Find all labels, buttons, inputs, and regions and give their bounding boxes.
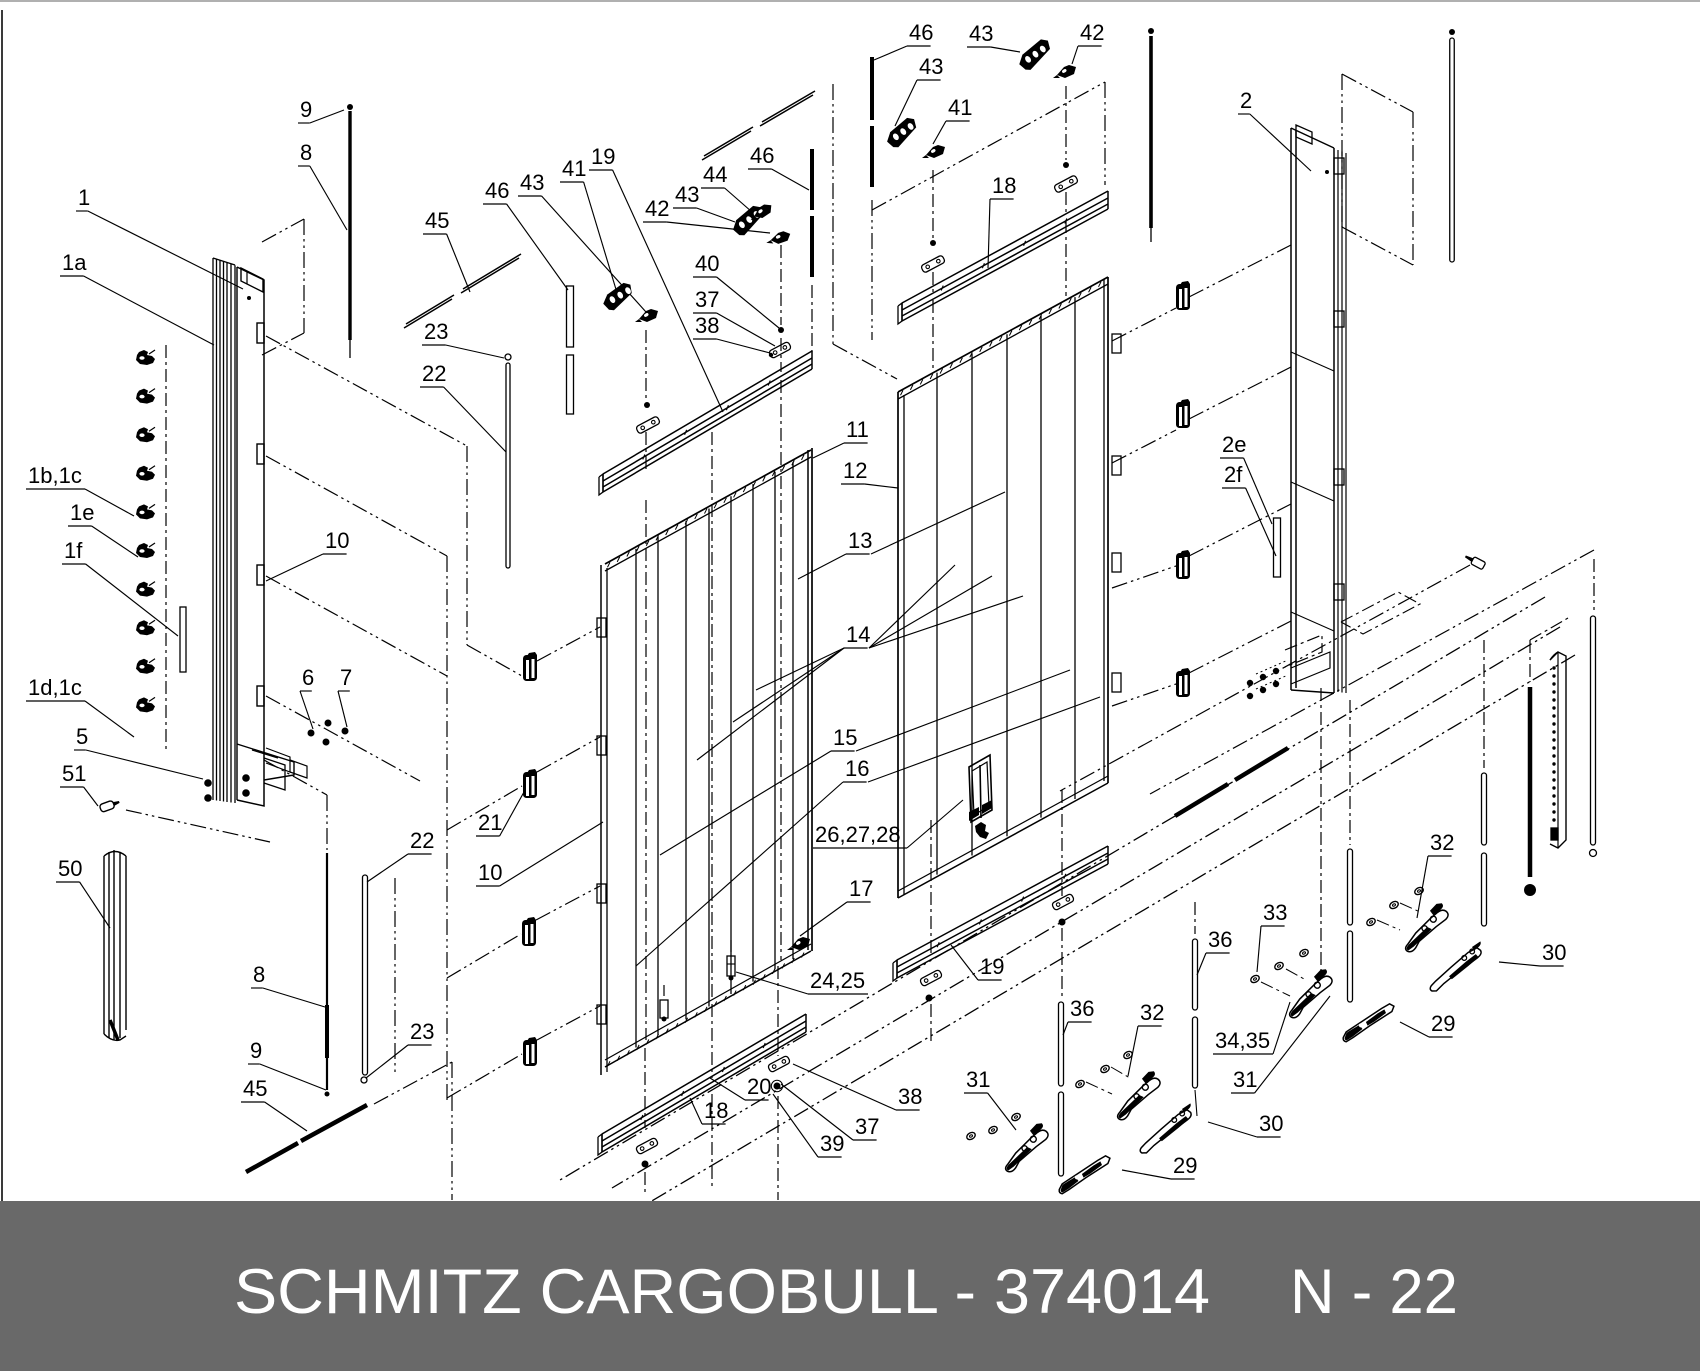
svg-text:19: 19 — [591, 144, 615, 169]
svg-text:32: 32 — [1430, 830, 1454, 855]
svg-text:32: 32 — [1140, 1000, 1164, 1025]
svg-text:46: 46 — [485, 178, 509, 203]
svg-text:2f: 2f — [1224, 462, 1243, 487]
svg-text:20: 20 — [747, 1074, 771, 1099]
svg-text:15: 15 — [833, 725, 857, 750]
svg-text:31: 31 — [1233, 1067, 1257, 1092]
svg-text:39: 39 — [820, 1131, 844, 1156]
svg-text:14: 14 — [846, 622, 870, 647]
svg-text:8: 8 — [300, 140, 312, 165]
svg-text:36: 36 — [1070, 996, 1094, 1021]
svg-text:18: 18 — [704, 1098, 728, 1123]
svg-text:31: 31 — [966, 1067, 990, 1092]
svg-text:24,25: 24,25 — [810, 968, 865, 993]
svg-text:1b,1c: 1b,1c — [28, 463, 82, 488]
svg-text:2e: 2e — [1222, 432, 1246, 457]
svg-text:9: 9 — [250, 1038, 262, 1063]
svg-text:1f: 1f — [64, 538, 83, 563]
svg-text:1e: 1e — [70, 500, 94, 525]
svg-text:30: 30 — [1259, 1111, 1283, 1136]
svg-text:43: 43 — [675, 182, 699, 207]
svg-text:41: 41 — [948, 95, 972, 120]
svg-text:38: 38 — [898, 1084, 922, 1109]
svg-text:43: 43 — [969, 21, 993, 46]
svg-text:42: 42 — [1080, 20, 1104, 45]
svg-text:22: 22 — [422, 361, 446, 386]
svg-text:1a: 1a — [62, 250, 87, 275]
svg-text:34,35: 34,35 — [1215, 1028, 1270, 1053]
svg-text:7: 7 — [340, 665, 352, 690]
svg-text:6: 6 — [302, 665, 314, 690]
svg-text:41: 41 — [562, 156, 586, 181]
svg-text:29: 29 — [1173, 1153, 1197, 1178]
svg-text:17: 17 — [849, 876, 873, 901]
svg-text:5: 5 — [76, 724, 88, 749]
svg-text:30: 30 — [1542, 940, 1566, 965]
svg-text:16: 16 — [845, 756, 869, 781]
svg-text:50: 50 — [58, 856, 82, 881]
svg-text:9: 9 — [300, 97, 312, 122]
svg-text:43: 43 — [520, 170, 544, 195]
svg-text:2: 2 — [1240, 88, 1252, 113]
svg-text:1: 1 — [78, 185, 90, 210]
svg-text:23: 23 — [424, 319, 448, 344]
svg-text:45: 45 — [425, 208, 449, 233]
svg-text:36: 36 — [1208, 927, 1232, 952]
svg-text:42: 42 — [645, 196, 669, 221]
svg-text:37: 37 — [695, 287, 719, 312]
svg-text:37: 37 — [855, 1114, 879, 1139]
svg-text:22: 22 — [410, 828, 434, 853]
svg-text:33: 33 — [1263, 900, 1287, 925]
svg-text:45: 45 — [243, 1076, 267, 1101]
svg-text:1d,1c: 1d,1c — [28, 675, 82, 700]
svg-text:46: 46 — [909, 20, 933, 45]
svg-text:44: 44 — [703, 162, 727, 187]
svg-text:46: 46 — [750, 143, 774, 168]
svg-text:29: 29 — [1431, 1011, 1455, 1036]
svg-text:13: 13 — [848, 528, 872, 553]
svg-text:10: 10 — [478, 860, 502, 885]
svg-text:11: 11 — [846, 417, 869, 442]
svg-text:N - 22: N - 22 — [1290, 1257, 1458, 1327]
svg-text:19: 19 — [980, 954, 1004, 979]
svg-text:40: 40 — [695, 251, 719, 276]
svg-text:26,27,28: 26,27,28 — [815, 822, 901, 847]
svg-text:12: 12 — [843, 458, 867, 483]
svg-text:38: 38 — [695, 313, 719, 338]
svg-text:51: 51 — [62, 761, 86, 786]
svg-text:21: 21 — [478, 810, 502, 835]
svg-text:18: 18 — [992, 173, 1016, 198]
svg-text:10: 10 — [325, 528, 349, 553]
svg-text:SCHMITZ CARGOBULL - 374014: SCHMITZ CARGOBULL - 374014 — [234, 1257, 1210, 1327]
svg-text:8: 8 — [253, 962, 265, 987]
svg-text:43: 43 — [919, 54, 943, 79]
svg-text:23: 23 — [410, 1019, 434, 1044]
